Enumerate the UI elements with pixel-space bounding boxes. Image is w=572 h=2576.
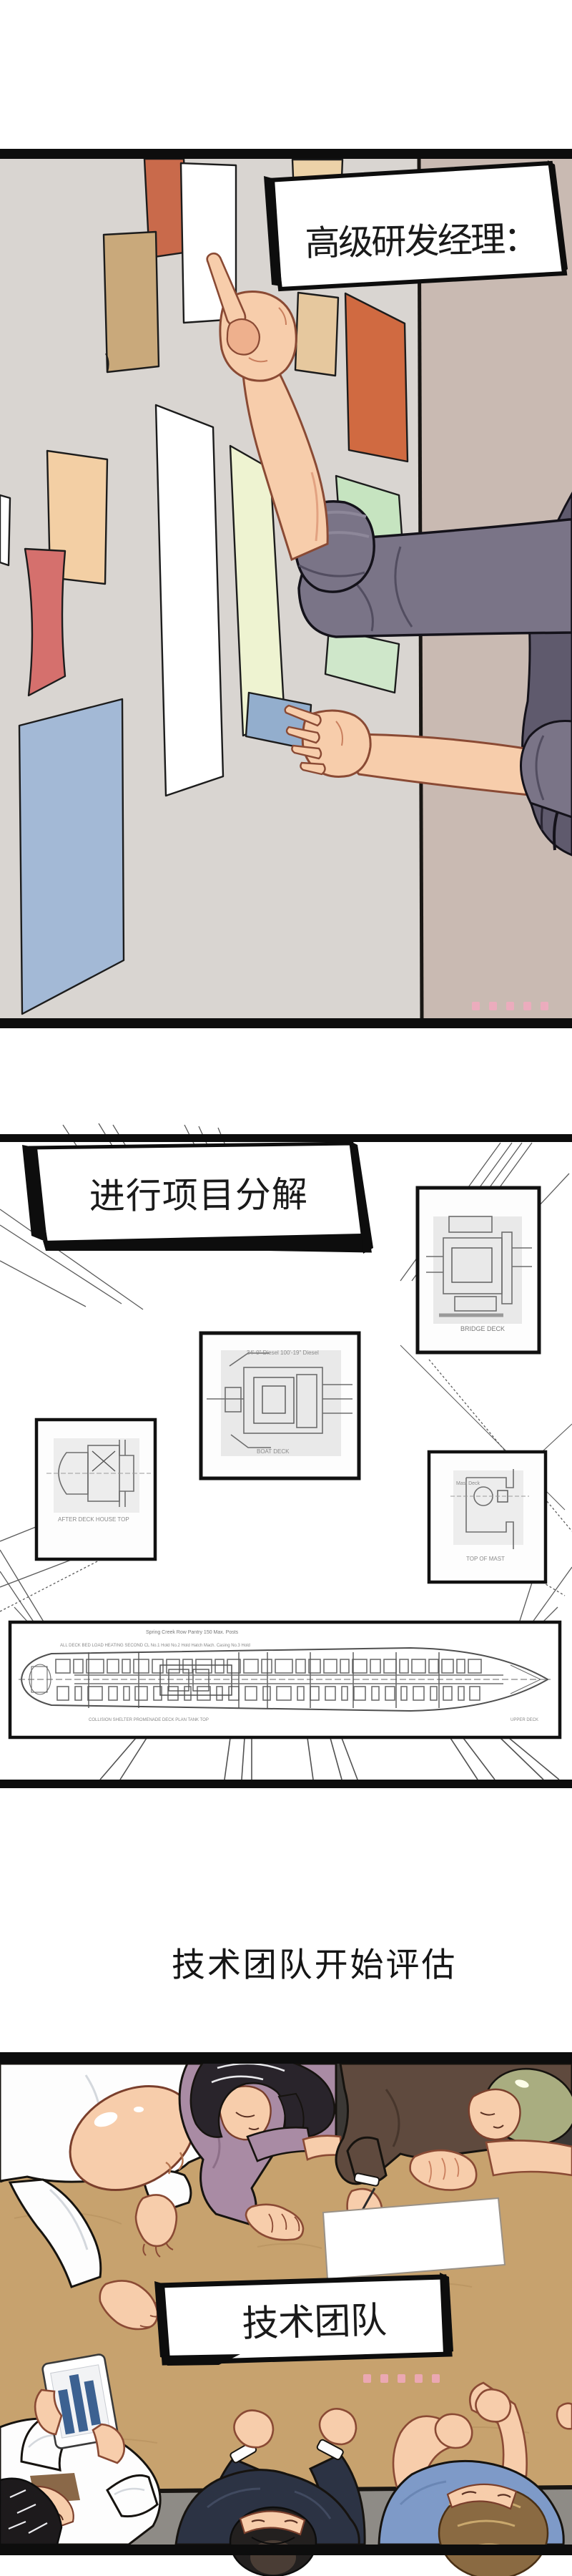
svg-text:BRIDGE DECK: BRIDGE DECK: [460, 1325, 505, 1332]
svg-text:COLLISION SHELTER PROMENAD: COLLISION SHELTER PROMENADE DECK PLAN TA…: [89, 1718, 209, 1722]
svg-text:UPPER DECK: UPPER DECK: [511, 1718, 538, 1722]
svg-text:Spring Creek Row Pantry 150: Spring Creek Row Pantry 150 Max. Posts: [146, 1630, 239, 1635]
svg-text:TOP OF MAST: TOP OF MAST: [466, 1556, 505, 1562]
svg-text:BOAT DECK: BOAT DECK: [257, 1448, 290, 1455]
svg-text:Mast Deck: Mast Deck: [456, 1481, 480, 1486]
svg-text:34'-0" Diesel 100'-19" Diesel: 34'-0" Diesel 100'-19" Diesel: [247, 1350, 319, 1356]
svg-text:AFTER DECK HOUSE TOP: AFTER DECK HOUSE TOP: [58, 1516, 129, 1523]
svg-text:ALL DECK BED LOAD HEATING: ALL DECK BED LOAD HEATING SECOND CL No.1…: [60, 1644, 250, 1648]
